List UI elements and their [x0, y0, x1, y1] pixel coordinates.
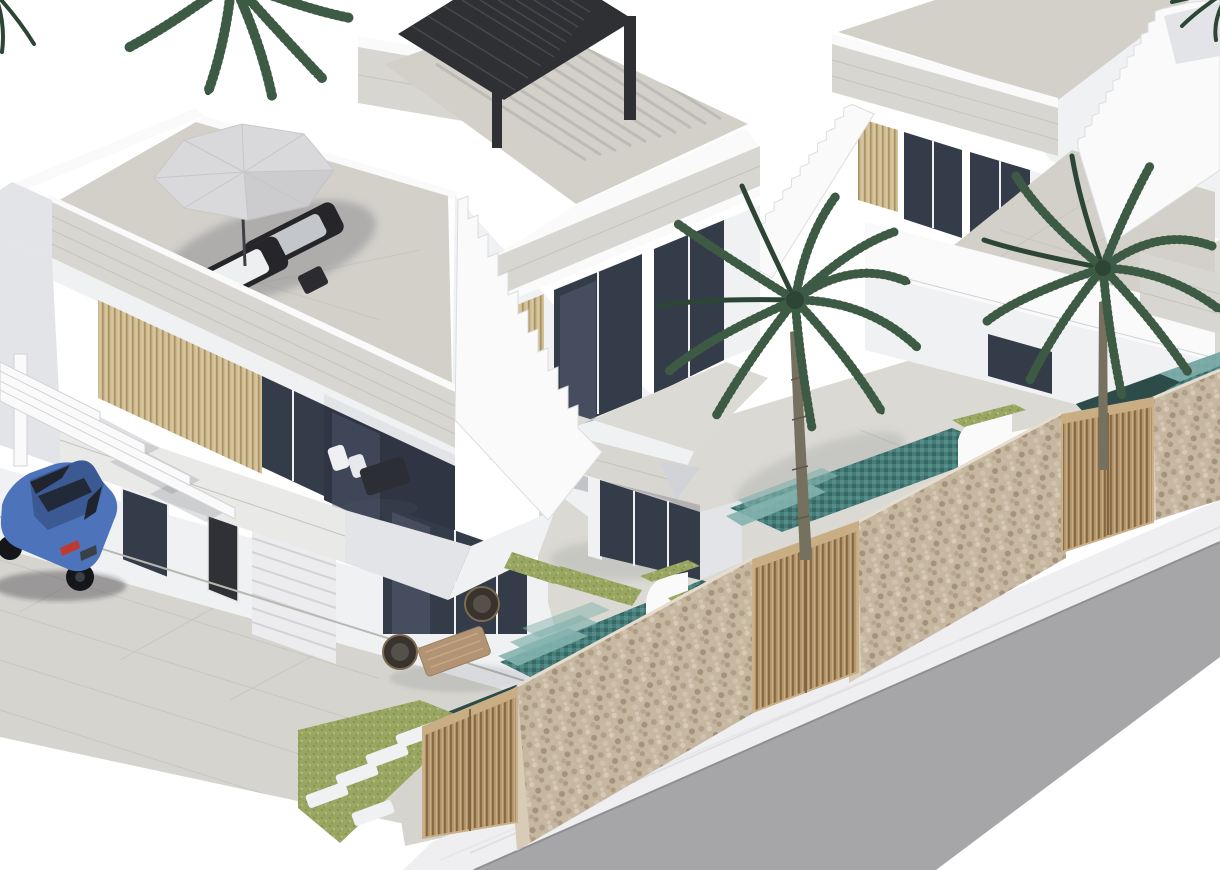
- villa1-left-wall: [0, 238, 60, 466]
- pergola-leg-right: [624, 16, 636, 120]
- villa2-ground-pillar: [588, 476, 602, 560]
- palm-right-crown: [1095, 260, 1111, 276]
- villa-render-image: [0, 0, 1220, 870]
- palm-center-crown: [786, 291, 804, 309]
- render-stage: Isometric CGI rendering of a row of thre…: [0, 0, 1220, 870]
- villa3-wood-slats: [858, 118, 898, 212]
- wicker-chair1-cushion: [473, 595, 491, 613]
- wicker-chair2-cushion: [391, 643, 409, 661]
- parasol-pole: [243, 218, 245, 266]
- car-wheel-hub: [75, 572, 85, 582]
- villa2-upper-wall-right: [724, 205, 760, 360]
- car-shadow: [0, 571, 126, 601]
